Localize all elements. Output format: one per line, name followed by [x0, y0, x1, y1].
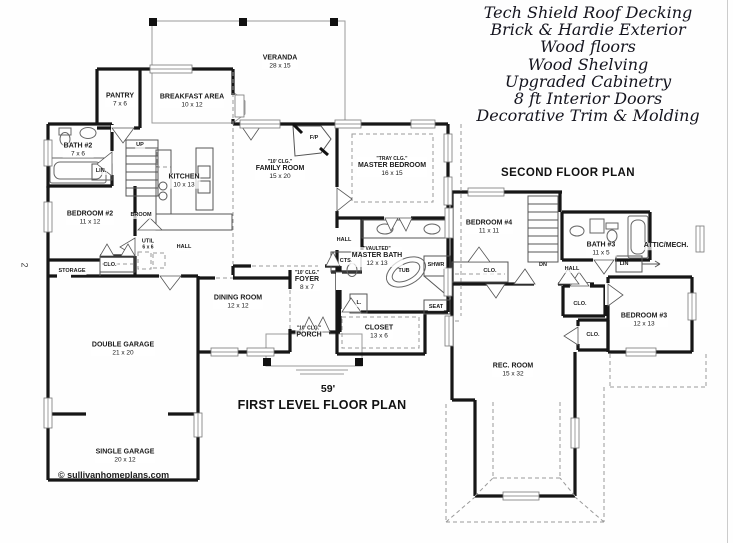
room-label-bedroom2: BEDROOM #211 x 12 — [66, 211, 114, 226]
windows — [44, 65, 704, 500]
veranda-outline — [152, 21, 362, 374]
room-label-clo-c: CLO. — [585, 333, 600, 339]
room-label-hall: HALL — [176, 245, 193, 251]
feature-line: Wood Shelving — [442, 56, 733, 73]
room-label-dining: DINING ROOM12 x 12 — [213, 295, 263, 310]
room-label-single-garage: SINGLE GARAGE20 x 12 — [95, 449, 156, 464]
feature-line: 8 ft Interior Doors — [442, 90, 733, 107]
room-label-kitchen: KITCHEN10 x 13 — [167, 174, 200, 189]
room-label-hall3: HALL — [564, 267, 581, 273]
watermark: © sullivanhomeplans.com — [58, 470, 169, 480]
room-label-util: UTIL6 x 6 — [141, 239, 155, 250]
room-label-family: "10' CLG."FAMILY ROOM15 x 20 — [255, 160, 306, 180]
room-label-bath3: BATH #311 x 5 — [586, 242, 617, 257]
second-floor-walls — [452, 192, 692, 496]
feature-line: Tech Shield Roof Decking — [442, 4, 733, 21]
room-label-bedroom4: BEDROOM #411 x 11 — [465, 220, 513, 235]
room-label-clo-a: CLO. — [482, 269, 497, 275]
feature-line: Wood floors — [442, 38, 733, 55]
room-label-clo-b: CLO. — [572, 302, 587, 308]
room-label-broom: BROOM — [129, 213, 152, 219]
room-label-up: UP — [135, 143, 145, 149]
side-dimension-mark: 2 — [20, 262, 30, 267]
room-label-linen2: L. — [356, 301, 363, 307]
room-label-seat: SEAT — [428, 305, 444, 311]
room-label-clo1: CLO. — [102, 263, 117, 269]
room-label-tub: TUB — [397, 269, 410, 275]
room-label-master-closet: CLOSET13 x 6 — [364, 325, 394, 340]
first-level-plan-title: FIRST LEVEL FLOOR PLAN — [238, 398, 407, 412]
feature-line: Upgraded Cabinetry — [442, 73, 733, 90]
room-label-master-bath: "VAULTED"MASTER BATH12 x 13 — [351, 247, 403, 267]
second-floor-plan-title: SECOND FLOOR PLAN — [501, 167, 635, 179]
overall-width-dimension: 59' — [321, 383, 335, 395]
window-midlines — [48, 69, 700, 496]
room-label-hall2: HALL — [336, 238, 353, 244]
room-label-fireplace: F/P — [309, 136, 320, 142]
room-label-shower: SHWR — [427, 263, 446, 269]
floor-plan-page: Tech Shield Roof Decking Brick & Hardie … — [0, 0, 733, 543]
feature-line: Brick & Hardie Exterior — [442, 21, 733, 38]
room-label-double-garage: DOUBLE GARAGE21 x 20 — [91, 342, 155, 357]
room-label-linen: LIN. — [95, 169, 107, 175]
room-label-pantry: PANTRY7 x 6 — [105, 93, 135, 108]
room-label-foyer: "10' CLG."FOYER8 x 7 — [294, 271, 321, 291]
room-label-breakfast: BREAKFAST AREA10 x 12 — [159, 94, 225, 109]
room-label-bath2: BATH #27 x 6 — [63, 143, 94, 158]
room-label-rec-room: REC. ROOM15 x 32 — [492, 363, 534, 378]
room-label-veranda: VERANDA28 x 15 — [262, 55, 299, 70]
room-label-lin3: LIN — [619, 262, 630, 268]
room-label-bedroom3: BEDROOM #312 x 13 — [620, 313, 668, 328]
screenshot-edge-line — [727, 0, 728, 543]
room-label-master-bedroom: "TRAY CLG."MASTER BEDROOM16 x 15 — [357, 157, 427, 177]
room-label-dn: DN — [538, 263, 548, 269]
room-label-attic: ATTIC/MECH. — [643, 242, 690, 250]
feature-list: Tech Shield Roof Decking Brick & Hardie … — [442, 4, 733, 124]
room-label-storage: STORAGE — [57, 269, 86, 275]
room-label-porch: "10' CLG."PORCH — [295, 327, 322, 340]
feature-line: Decorative Trim & Molding — [442, 107, 733, 124]
